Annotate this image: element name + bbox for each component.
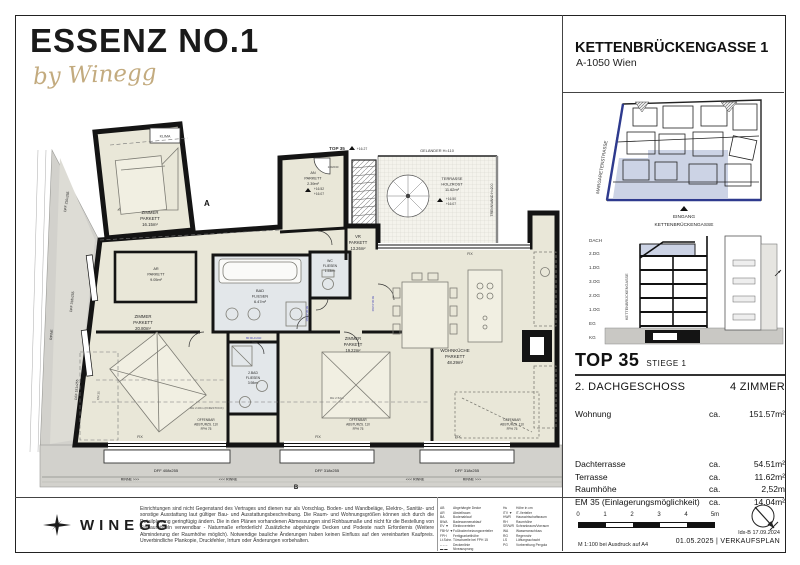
scale-box: 0 1 2 3 4 5m M 1:100 bei Ausdruck auf A4… bbox=[570, 500, 784, 550]
klima-label: KLIMA bbox=[160, 135, 171, 139]
kitchen-island-icon bbox=[468, 270, 502, 342]
scale-bar bbox=[578, 522, 715, 528]
terrace-glazing bbox=[378, 243, 530, 250]
svg-text:1.DG: 1.DG bbox=[589, 265, 600, 270]
svg-text:16.15m²: 16.15m² bbox=[142, 222, 158, 227]
svg-text:3.98m²: 3.98m² bbox=[248, 381, 259, 385]
svg-text:PARKETT: PARKETT bbox=[344, 342, 363, 347]
svg-text:AR: AR bbox=[153, 267, 159, 271]
svg-text:RINNE >>>: RINNE >>> bbox=[463, 478, 481, 482]
svg-text:FPH 75: FPH 75 bbox=[507, 427, 518, 431]
svg-text:2.39m²: 2.39m² bbox=[307, 182, 320, 186]
area-row: Dachterrasse ca. 54.51m² bbox=[575, 459, 785, 469]
svg-text:DFF 408x255: DFF 408x255 bbox=[154, 468, 179, 473]
legend-row: ▬ ▬ Niveausprung bbox=[440, 547, 499, 552]
svg-text:EM 35: EM 35 bbox=[96, 391, 101, 400]
area-row: Terrasse ca. 11.62m² bbox=[575, 472, 785, 482]
scale-ticks: 0 1 2 3 4 5m bbox=[578, 512, 715, 519]
svg-text:AN: AN bbox=[310, 171, 316, 175]
unit-number: TOP 35 bbox=[575, 350, 639, 371]
svg-text:OFFENBAR: OFFENBAR bbox=[197, 418, 215, 422]
entrance-marker-icon bbox=[680, 206, 688, 211]
section-street-label: KETTENBRÜCKENGASSE bbox=[625, 273, 629, 320]
svg-text:2.OG: 2.OG bbox=[589, 293, 600, 298]
svg-text:80 RH=240: 80 RH=240 bbox=[246, 336, 262, 340]
address-line1: KETTENBRÜCKENGASSE 1 bbox=[575, 40, 768, 56]
svg-text:OFFENBAR: OFFENBAR bbox=[503, 418, 521, 422]
highlight-floor bbox=[640, 244, 695, 256]
svg-text:6.47m²: 6.47m² bbox=[254, 299, 267, 304]
terrace-area bbox=[378, 156, 497, 245]
gelaender-label: GELÄNDER H=110 bbox=[420, 148, 455, 153]
top35-entry-label: TOP 35 bbox=[329, 146, 345, 151]
brand-byline-script: by Winegg bbox=[33, 60, 157, 90]
plan-type-date: 01.05.2025 | VERKAUFSPLAN bbox=[676, 538, 780, 545]
street-label-left: MARGARETENSTRASSE bbox=[595, 140, 608, 194]
header-divider bbox=[562, 92, 784, 93]
svg-text:FPH 75: FPH 75 bbox=[353, 427, 364, 431]
winegg-star-icon bbox=[42, 512, 72, 538]
svg-text:1.OG: 1.OG bbox=[589, 307, 600, 312]
svg-text:FIX: FIX bbox=[467, 252, 473, 256]
area-row: Raumhöhe ca. 2,52m bbox=[575, 484, 785, 494]
svg-text:20.80m²: 20.80m² bbox=[135, 326, 151, 331]
svg-text:KETTENBRÜCKENGASSE: KETTENBRÜCKENGASSE bbox=[655, 221, 714, 228]
svg-text:FLIESEN: FLIESEN bbox=[246, 376, 261, 380]
bed-icon bbox=[322, 352, 390, 418]
scale-note: M 1:100 bei Ausdruck auf A4 bbox=[578, 542, 648, 548]
floor-labels: DACH 2.DG 1.DG 3.OG 2.OG 1.OG EG KG bbox=[589, 238, 602, 340]
svg-text:9.05m²: 9.05m² bbox=[150, 278, 163, 282]
svg-text:+16.52: +16.52 bbox=[314, 187, 324, 191]
svg-text:RH 2.00m (KNIESTOCK): RH 2.00m (KNIESTOCK) bbox=[190, 406, 224, 410]
svg-text:FIX: FIX bbox=[137, 435, 143, 439]
spiral-stair-icon bbox=[387, 175, 429, 217]
trennwand-label: TRENNWAND H=200 bbox=[490, 183, 494, 216]
building-section: DACH 2.DG 1.DG 3.OG 2.OG 1.OG EG KG KETT… bbox=[585, 228, 785, 346]
svg-text:PARKETT: PARKETT bbox=[133, 320, 153, 325]
svg-text:ZIMMER: ZIMMER bbox=[142, 210, 159, 215]
site-map: MARGARETENSTRASSE EINGANG KETTENBRÜCKENG… bbox=[593, 98, 785, 230]
svg-text:+16.07: +16.07 bbox=[446, 202, 456, 206]
svg-text:1.53m²: 1.53m² bbox=[325, 269, 336, 273]
svg-text:+16.07: +16.07 bbox=[314, 192, 324, 196]
svg-text:11.62m²: 11.62m² bbox=[445, 187, 460, 192]
svg-text:+16.27: +16.27 bbox=[357, 147, 368, 151]
svg-text:ABSTURZS. 110: ABSTURZS. 110 bbox=[194, 423, 218, 427]
svg-text:<<< RINNE: <<< RINNE bbox=[406, 478, 425, 482]
address-line2: A-1050 Wien bbox=[576, 57, 637, 69]
north-arrow-icon bbox=[748, 502, 782, 534]
common-staircase bbox=[352, 160, 376, 226]
svg-text:DFF 318x255: DFF 318x255 bbox=[315, 468, 340, 473]
svg-text:80 RH=240: 80 RH=240 bbox=[305, 306, 309, 322]
svg-text:EG: EG bbox=[589, 321, 596, 326]
svg-text:RH 2.52m: RH 2.52m bbox=[330, 396, 344, 400]
footer-col-divider bbox=[437, 497, 438, 551]
svg-text:80 RH=240: 80 RH=240 bbox=[371, 296, 375, 312]
svg-text:PARKETT: PARKETT bbox=[445, 354, 465, 359]
svg-text:WOHNKÜCHE: WOHNKÜCHE bbox=[440, 348, 469, 353]
svg-text:13.26m²: 13.26m² bbox=[350, 246, 366, 251]
svg-text:HOLZROST: HOLZROST bbox=[441, 182, 463, 187]
legend: AB Abgehängte Decke AR Abstellraum BA Bo… bbox=[440, 506, 562, 552]
section-marker-a: A bbox=[204, 199, 210, 208]
floor-name: 2. DACHGESCHOSS bbox=[575, 381, 685, 393]
svg-text:WC: WC bbox=[327, 259, 333, 263]
floor-plan: ZIMMER PARKETT 16.15m² AR PARKETT 9.05m²… bbox=[15, 100, 562, 497]
svg-text:TERRASSE: TERRASSE bbox=[442, 176, 463, 181]
svg-text:FPH 75: FPH 75 bbox=[201, 427, 212, 431]
svg-text:ZIMMER: ZIMMER bbox=[345, 336, 361, 341]
rooms-count: 4 ZIMMER bbox=[730, 381, 785, 393]
svg-text:+16.50: +16.50 bbox=[446, 197, 456, 201]
unit-info-block: TOP 35 STIEGE 1 2. DACHGESCHOSS 4 ZIMMER… bbox=[575, 350, 785, 507]
svg-text:2.BAD: 2.BAD bbox=[248, 371, 258, 375]
svg-text:KG: KG bbox=[589, 335, 596, 340]
svg-text:BAD: BAD bbox=[256, 288, 264, 293]
svg-text:FLIESEN: FLIESEN bbox=[323, 264, 338, 268]
svg-text:OFFENBAR: OFFENBAR bbox=[349, 418, 367, 422]
svg-text:3.OG: 3.OG bbox=[589, 279, 600, 284]
svg-text:EINGANG: EINGANG bbox=[673, 214, 695, 220]
svg-text:VR: VR bbox=[355, 234, 361, 239]
svg-text:48.29m²: 48.29m² bbox=[447, 360, 464, 365]
svg-text:DFF 318x255: DFF 318x255 bbox=[455, 468, 480, 473]
section-marker-b: B bbox=[294, 485, 299, 491]
svg-text:FIX: FIX bbox=[315, 435, 321, 439]
svg-text:PARKETT: PARKETT bbox=[140, 216, 160, 221]
svg-text:FIX: FIX bbox=[455, 435, 461, 439]
sidebar-divider bbox=[562, 15, 563, 551]
svg-text:DACH: DACH bbox=[589, 238, 602, 243]
svg-text:FLIESEN: FLIESEN bbox=[252, 294, 268, 299]
svg-text:PARKETT: PARKETT bbox=[349, 240, 368, 245]
svg-text:ABSTURZS. 110: ABSTURZS. 110 bbox=[500, 423, 524, 427]
svg-text:PARKETT: PARKETT bbox=[147, 273, 165, 277]
project-title: ESSENZ NO.1 bbox=[30, 22, 259, 60]
legend-row: PG Vorbereitung Pergola bbox=[503, 543, 562, 548]
svg-text:PARKETT: PARKETT bbox=[304, 177, 322, 181]
area-row-wohnung: Wohnung ca. 151.57m² bbox=[575, 409, 785, 419]
dining-table-icon bbox=[393, 273, 457, 348]
svg-text:<<< RINNE: <<< RINNE bbox=[219, 478, 238, 482]
bathtub-icon bbox=[219, 259, 301, 283]
svg-text:RINNE >>>: RINNE >>> bbox=[121, 478, 139, 482]
svg-text:ABSTURZS. 110: ABSTURZS. 110 bbox=[346, 423, 370, 427]
svg-text:2.DG: 2.DG bbox=[589, 251, 600, 256]
svg-text:100/230: 100/230 bbox=[328, 165, 339, 169]
disclaimer-text: Einrichtungen sind nicht Gegenstand des … bbox=[140, 506, 434, 544]
stiege-label: STIEGE 1 bbox=[646, 359, 686, 368]
svg-text:ZIMMER: ZIMMER bbox=[135, 314, 152, 319]
svg-text:19.22m²: 19.22m² bbox=[345, 348, 361, 353]
